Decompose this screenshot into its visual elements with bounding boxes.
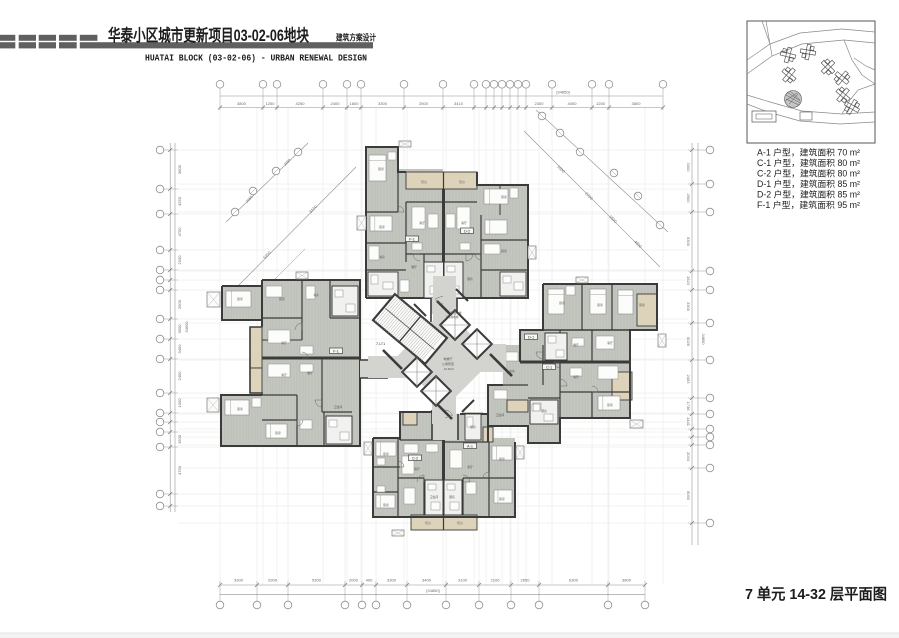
svg-text:1500: 1500 bbox=[177, 434, 182, 444]
svg-text:1600: 1600 bbox=[350, 101, 360, 106]
svg-text:华泰小区城市更新项目03-02-06地块: 华泰小区城市更新项目03-02-06地块 bbox=[108, 25, 309, 45]
svg-text:客厅: 客厅 bbox=[419, 221, 425, 225]
svg-text:34850: 34850 bbox=[701, 333, 706, 345]
svg-text:餐厅: 餐厅 bbox=[307, 371, 313, 375]
svg-text:2300: 2300 bbox=[535, 101, 545, 106]
svg-text:1441: 1441 bbox=[686, 417, 691, 427]
svg-text:400: 400 bbox=[366, 578, 373, 583]
svg-text:4250: 4250 bbox=[296, 101, 306, 106]
svg-text:A-1: A-1 bbox=[467, 445, 473, 449]
svg-text:F-1: F-1 bbox=[409, 238, 415, 242]
svg-text:F-1: F-1 bbox=[333, 350, 339, 354]
svg-text:34600: 34600 bbox=[184, 321, 189, 333]
svg-text:2400: 2400 bbox=[177, 371, 182, 381]
svg-text:消防电梯: 消防电梯 bbox=[450, 311, 461, 315]
svg-text:1738: 1738 bbox=[686, 402, 691, 412]
svg-text:7-LT1: 7-LT1 bbox=[376, 342, 385, 346]
svg-text:厨房: 厨房 bbox=[449, 495, 455, 499]
svg-text:卧室: 卧室 bbox=[237, 297, 243, 301]
svg-text:3410: 3410 bbox=[454, 101, 464, 106]
svg-text:[34850]: [34850] bbox=[426, 588, 439, 593]
svg-text:1000: 1000 bbox=[177, 398, 182, 408]
svg-text:HUATAI BLOCK (03-02-06) - URBA: HUATAI BLOCK (03-02-06) - URBAN RENEWAL … bbox=[145, 53, 367, 64]
svg-text:卧室: 卧室 bbox=[597, 303, 603, 307]
svg-text:2900: 2900 bbox=[686, 194, 691, 204]
svg-text:卧室: 卧室 bbox=[383, 452, 389, 456]
svg-text:卧室: 卧室 bbox=[639, 303, 645, 307]
svg-text:5300: 5300 bbox=[312, 578, 322, 583]
svg-text:卫生间: 卫生间 bbox=[430, 495, 439, 499]
svg-text:D-2 户型，建筑面积 85 m²: D-2 户型，建筑面积 85 m² bbox=[757, 188, 860, 199]
svg-text:阳台: 阳台 bbox=[421, 179, 427, 184]
svg-text:2600: 2600 bbox=[177, 299, 182, 309]
svg-text:无障碍电梯: 无障碍电梯 bbox=[446, 315, 459, 319]
svg-text:卧室: 卧室 bbox=[237, 407, 243, 411]
svg-text:卧室: 卧室 bbox=[607, 403, 613, 407]
svg-text:C-2 户型，建筑面积 80 m²: C-2 户型，建筑面积 80 m² bbox=[757, 167, 860, 178]
svg-text:卧室: 卧室 bbox=[378, 167, 384, 171]
svg-text:3800: 3800 bbox=[177, 164, 182, 174]
svg-text:卫生间: 卫生间 bbox=[496, 413, 505, 417]
svg-text:餐厅: 餐厅 bbox=[573, 343, 579, 347]
svg-text:3300: 3300 bbox=[234, 578, 244, 583]
svg-text:电梯厅: 电梯厅 bbox=[443, 356, 452, 361]
svg-text:卧室: 卧室 bbox=[379, 225, 385, 229]
svg-text:2000: 2000 bbox=[349, 578, 359, 583]
svg-text:7 单元 14-32 层平面图: 7 单元 14-32 层平面图 bbox=[745, 585, 887, 603]
svg-text:2330: 2330 bbox=[177, 255, 182, 265]
svg-text:公用寝室: 公用寝室 bbox=[442, 361, 454, 366]
svg-text:建筑方案设计: 建筑方案设计 bbox=[335, 33, 376, 43]
svg-text:F-1 户型，建筑面积 95 m²: F-1 户型，建筑面积 95 m² bbox=[757, 199, 860, 210]
svg-text:厨房: 厨房 bbox=[470, 425, 476, 429]
svg-text:[34850]: [34850] bbox=[556, 90, 569, 95]
svg-text:2400: 2400 bbox=[331, 101, 341, 106]
svg-text:5026: 5026 bbox=[686, 337, 691, 347]
svg-text:客厅: 客厅 bbox=[414, 467, 420, 471]
svg-text:阳台: 阳台 bbox=[457, 520, 463, 525]
svg-text:D-2: D-2 bbox=[464, 230, 470, 234]
svg-text:3800: 3800 bbox=[622, 578, 632, 583]
svg-text:卧室: 卧室 bbox=[279, 297, 285, 301]
svg-text:客厅: 客厅 bbox=[573, 375, 579, 379]
svg-text:客厅: 客厅 bbox=[467, 465, 473, 469]
svg-text:42.69m²: 42.69m² bbox=[444, 367, 454, 371]
svg-text:A-1 户型，建筑面积 70 m²: A-1 户型，建筑面积 70 m² bbox=[757, 147, 860, 158]
svg-text:4050: 4050 bbox=[568, 101, 578, 106]
svg-text:2650: 2650 bbox=[521, 578, 531, 583]
svg-text:5300: 5300 bbox=[686, 237, 691, 247]
svg-text:卧室: 卧室 bbox=[383, 503, 389, 507]
svg-text:卧室: 卧室 bbox=[499, 457, 505, 461]
svg-text:卫生间: 卫生间 bbox=[334, 405, 343, 409]
svg-text:4250: 4250 bbox=[177, 196, 182, 206]
svg-text:3800: 3800 bbox=[632, 101, 642, 106]
svg-text:2034: 2034 bbox=[686, 452, 691, 462]
svg-text:客厅: 客厅 bbox=[281, 373, 287, 377]
svg-text:D-1: D-1 bbox=[528, 336, 534, 340]
svg-text:1250: 1250 bbox=[596, 101, 606, 106]
svg-text:3000: 3000 bbox=[177, 324, 182, 334]
svg-text:书房: 书房 bbox=[379, 255, 385, 259]
svg-text:1523: 1523 bbox=[686, 276, 691, 286]
svg-text:2453: 2453 bbox=[686, 375, 691, 385]
svg-text:卧室: 卧室 bbox=[499, 497, 505, 501]
svg-text:2900: 2900 bbox=[268, 578, 278, 583]
svg-text:3300: 3300 bbox=[686, 163, 691, 173]
svg-text:D-1 户型，建筑面积 85 m²: D-1 户型，建筑面积 85 m² bbox=[757, 178, 860, 189]
svg-text:卧室: 卧室 bbox=[275, 431, 281, 435]
svg-text:5050: 5050 bbox=[686, 491, 691, 501]
svg-text:卧室: 卧室 bbox=[559, 301, 565, 305]
svg-text:4750: 4750 bbox=[177, 227, 182, 237]
svg-text:厨房: 厨房 bbox=[467, 277, 473, 281]
svg-text:卧室: 卧室 bbox=[501, 249, 507, 253]
svg-text:3300: 3300 bbox=[387, 578, 397, 583]
svg-text:厨房: 厨房 bbox=[541, 409, 547, 413]
svg-text:2100: 2100 bbox=[491, 578, 501, 583]
svg-text:客厅: 客厅 bbox=[607, 341, 613, 345]
svg-text:书房: 书房 bbox=[313, 293, 319, 297]
svg-text:阳台: 阳台 bbox=[459, 179, 465, 184]
svg-text:3400: 3400 bbox=[422, 578, 432, 583]
svg-text:3100: 3100 bbox=[458, 578, 468, 583]
svg-text:阳台: 阳台 bbox=[425, 520, 431, 525]
svg-text:2500: 2500 bbox=[419, 101, 429, 106]
svg-text:C-1 户型，建筑面积 80 m²: C-1 户型，建筑面积 80 m² bbox=[757, 157, 860, 168]
svg-text:3400: 3400 bbox=[177, 344, 182, 354]
svg-text:3800: 3800 bbox=[237, 101, 247, 106]
svg-text:3300: 3300 bbox=[686, 302, 691, 312]
svg-text:3300: 3300 bbox=[378, 101, 388, 106]
svg-text:4750: 4750 bbox=[177, 465, 182, 475]
svg-text:餐厅: 餐厅 bbox=[411, 265, 417, 269]
svg-text:客厅: 客厅 bbox=[281, 341, 287, 345]
svg-text:C-2: C-2 bbox=[412, 457, 418, 461]
svg-text:1250: 1250 bbox=[266, 101, 276, 106]
svg-text:客厅: 客厅 bbox=[461, 221, 467, 225]
svg-text:卧室: 卧室 bbox=[501, 195, 507, 199]
svg-text:C-1: C-1 bbox=[546, 366, 552, 370]
svg-text:6300: 6300 bbox=[569, 578, 579, 583]
